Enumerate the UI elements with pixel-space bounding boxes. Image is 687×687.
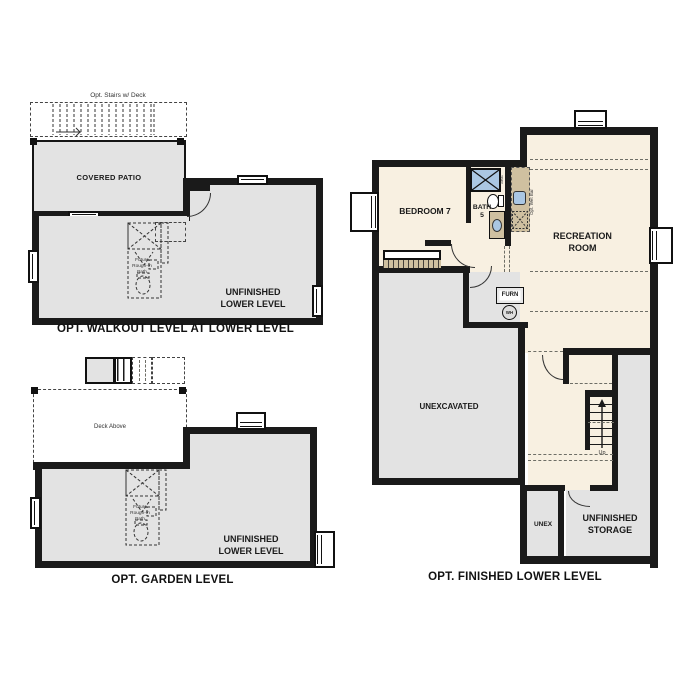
opening-dashed [509,246,510,272]
opening-dashed [528,351,563,352]
deck-stairs-drawing [30,102,187,137]
wall [590,485,618,491]
dashed-line [530,271,648,272]
water-heater-label: WH [503,310,516,316]
patio-post [177,138,184,145]
wall [518,322,525,485]
sink [492,219,502,232]
future-bath-note: Future Rough-In Bath [126,505,154,523]
stair-steps [114,357,132,384]
bath-label: BATH 5 [468,204,496,220]
recreation-label: RECREATION ROOM [540,231,625,254]
wall [463,266,469,328]
window [237,175,268,185]
window-well-hatch [383,260,441,268]
toilet-tank [498,195,504,207]
floorplan-sheet: Opt. Stairs w/ Deck COVERED PATIO [0,0,687,687]
wall [520,485,565,491]
window-bay [236,412,266,430]
wall [183,185,210,191]
shower-x [470,168,501,192]
bedroom-window-seat [383,250,441,260]
storage-label: UNFINISHED STORAGE [568,513,652,536]
wall [372,160,525,167]
wall [520,556,658,564]
opt-stairs-deck-note: Opt. Stairs w/ Deck [58,92,178,100]
wall [372,478,525,485]
bedroom-label: BEDROOM 7 [385,206,465,217]
wall [520,485,527,564]
opening-dashed [504,246,505,272]
unfinished-lower-label: UNFINISHED LOWER LEVEL [190,534,312,557]
stair-break-line [588,422,614,423]
wet-bar-sink [513,191,526,205]
stairs-up-arrow [595,398,609,450]
covered-patio-label: COVERED PATIO [50,173,168,183]
plan-finished-caption: OPT. FINISHED LOWER LEVEL [400,571,630,583]
wall [563,348,569,384]
unexcavated-label: UNEXCAVATED [399,402,499,412]
furnace-label: FURN [497,292,523,300]
dashed-line [530,311,648,312]
window [30,497,41,529]
dashed-line [530,159,648,160]
window-bay [649,227,673,264]
stair-steps-dashed [132,357,152,384]
deck-post [31,387,38,394]
wall [563,348,658,355]
deck-post [179,387,186,394]
water-heater: WH [502,305,517,320]
wall [520,130,527,168]
unfinished-lower-label: UNFINISHED LOWER LEVEL [192,287,314,310]
stair-landing [85,357,115,384]
plan-garden-caption: OPT. GARDEN LEVEL [75,574,270,586]
wall [372,266,379,485]
deck-above-label: Deck Above [60,424,160,432]
future-bath-note: Future Rough-In Bath [128,258,156,276]
window-bay [314,531,335,568]
dashed-line [530,169,648,170]
plan-walkout-caption: OPT. WALKOUT LEVEL AT LOWER LEVEL [53,323,298,335]
opening-dashed [570,383,612,384]
window-bay [350,192,379,232]
window-bay [574,110,607,129]
wet-bar-label: Opt. Wet Bar [529,180,537,224]
wet-bar-x [512,211,528,229]
furnace: FURN [496,287,524,304]
dashed-line [528,454,613,455]
window [28,250,39,283]
seat-label: Seat [499,169,506,191]
wall [425,240,451,246]
stair-landing-dashed [152,357,185,384]
unex-label: UNEX [527,521,559,529]
dashed-line [528,460,613,461]
patio-post [30,138,37,145]
